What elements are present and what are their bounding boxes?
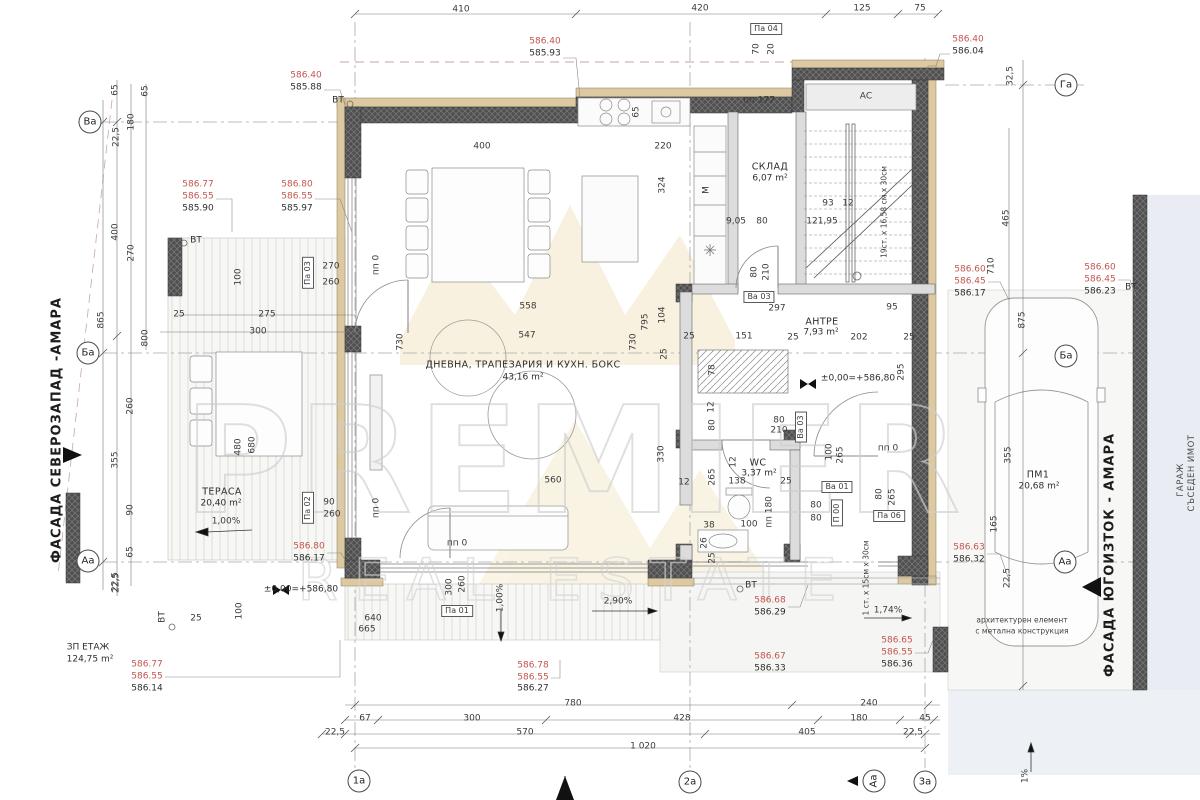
dimension-label: АС	[860, 93, 872, 102]
dimension-label: 80	[751, 266, 760, 277]
dimension-label: 121,95	[806, 218, 838, 227]
dimension-label: 210	[763, 263, 772, 280]
elevation-label: 586.29	[754, 609, 786, 618]
dimension-label: 875	[1019, 311, 1028, 328]
dimension-label: пп 0	[373, 498, 382, 518]
axis-label: Ва	[79, 111, 102, 134]
room-label: ПМ1	[1027, 470, 1050, 480]
note-label: архитектурен елемент	[976, 616, 1067, 624]
elevation-label-upper: 586.45	[954, 278, 986, 287]
panel-label: Па 03	[302, 257, 314, 289]
axis-label: Аа	[1054, 551, 1077, 574]
room-area-label: 20,68 m²	[1018, 483, 1059, 492]
room-area-label: 43,16 m²	[502, 374, 543, 383]
dimension-label: 78	[709, 364, 718, 375]
elevation-label-upper: 586.78	[517, 662, 549, 671]
elevation-label: 586.14	[131, 685, 163, 694]
dimension-label: 12	[842, 200, 853, 209]
dimension-label: 800	[142, 329, 151, 346]
dimension-label: 428	[673, 715, 690, 724]
dimension-label: М	[703, 186, 712, 194]
dimension-label: 730	[397, 333, 406, 350]
dimension-label: 300	[463, 715, 480, 724]
dimension-label: 151	[735, 333, 752, 342]
dimension-label: 420	[691, 5, 708, 14]
dimension-label: 100	[740, 521, 757, 530]
elevation-label: 586.36	[881, 661, 913, 670]
dimension-label: 330	[658, 445, 667, 462]
facade-label: ФАСАДА ЮГОИЗТОК - АМАРА	[1104, 433, 1117, 677]
axis-label: 3а	[914, 771, 937, 794]
elevation-label: ЗП ЕТАЖ	[67, 644, 109, 653]
dimension-label: 45	[919, 715, 930, 724]
axis-label: Аа	[863, 770, 886, 793]
dimension-label: 730	[630, 333, 639, 350]
dimension-label: 400	[473, 143, 490, 152]
dimension-label: 680	[249, 436, 258, 453]
elevation-label: 586.17	[954, 290, 986, 299]
dimension-label: 465	[1003, 209, 1012, 226]
elevation-label-upper: 586.55	[131, 673, 163, 682]
dimension-label: 25	[780, 478, 791, 487]
dimension-label: 19ст. х 16,58 см х 30см	[880, 166, 888, 258]
dimension-label: 560	[544, 477, 561, 486]
axis-label: Ба	[77, 342, 100, 365]
floor-plan-canvas: PREMIER REAL ESTATE 41042012575Па 047020…	[0, 0, 1200, 800]
dimension-label: 25	[903, 334, 914, 343]
dimension-label: 12	[708, 401, 717, 412]
dimension-label: 25	[709, 552, 718, 563]
dimension-label: пп 0	[878, 445, 898, 454]
elevation-label-upper: 586.55	[881, 649, 913, 658]
elevation-label: ±0,00=+586,80	[264, 586, 338, 595]
elevation-label-upper: 586.55	[281, 193, 313, 202]
elevation-label: ВТ	[745, 582, 757, 591]
dimension-label: 558	[519, 303, 536, 312]
dimension-label: 270	[128, 244, 137, 261]
panel-label: Ва 03	[795, 411, 807, 442]
dimension-label: 2,90%	[604, 598, 633, 607]
neighbor-label: СЪСЕДЕН ИМОТ	[1188, 435, 1197, 512]
dimension-label: 22,5	[1004, 568, 1013, 588]
dimension-label: 22,5	[325, 729, 345, 738]
annotation-layer: 41042012575Па 047020586.40585.93586.4058…	[0, 0, 1200, 800]
dimension-label: 65	[142, 85, 151, 96]
elevation-label-upper: 586.77	[182, 181, 214, 190]
dimension-label: 260	[323, 511, 340, 520]
dimension-label: пп 177	[743, 97, 775, 106]
dimension-label: 80	[810, 515, 821, 524]
dimension-label: 265	[889, 488, 898, 505]
axis-label: Ба	[1055, 345, 1078, 368]
elevation-label-upper: 586.80	[293, 543, 325, 552]
dimension-label: 1,00%	[212, 518, 241, 527]
dimension-label: 12	[678, 479, 689, 488]
dimension-label: 355	[1005, 446, 1014, 463]
dimension-label: 300	[446, 578, 455, 595]
dimension-label: 570	[516, 729, 533, 738]
elevation-label-upper: 586.68	[754, 597, 786, 606]
elevation-label-upper: 586.63	[953, 544, 985, 553]
dimension-label: 260	[322, 279, 339, 288]
dimension-label: 95	[886, 304, 897, 313]
facade-label: ФАСАДА СЕВЕРОЗАПАД -АМАРА	[51, 297, 64, 563]
dimension-label: 93	[822, 200, 833, 209]
dimension-label: ВТ	[159, 611, 168, 623]
room-area-label: 7,93 m²	[803, 329, 838, 338]
elevation-label: 585.88	[290, 84, 322, 93]
note-label: с метална конструкция	[975, 627, 1068, 635]
room-area-label: 6,07 m²	[752, 175, 787, 184]
dimension-label: 1,74%	[874, 607, 903, 616]
elevation-label: 124,75 m²	[67, 656, 114, 665]
dimension-label: 400	[112, 223, 121, 240]
dimension-label: 38	[703, 522, 714, 531]
elevation-label: 586.17	[293, 555, 325, 564]
room-label: АНТРЕ	[805, 317, 838, 327]
dimension-label: 300	[249, 328, 266, 337]
room-area-label: 20,40 m²	[200, 500, 241, 509]
dimension-label: 25	[787, 334, 798, 343]
dimension-label: 67	[359, 715, 370, 724]
dimension-label: 780	[564, 700, 581, 709]
dimension-label: 104	[659, 306, 668, 323]
dimension-label: 80	[773, 417, 784, 426]
dimension-label: 180	[128, 113, 137, 130]
dimension-label: 665	[358, 626, 375, 635]
room-label: СКЛАД	[752, 162, 788, 172]
room-label: ТЕРАСА	[202, 487, 242, 497]
dimension-label: 22,5	[903, 729, 923, 738]
dimension-label: 65	[127, 546, 136, 557]
axis-label: Га	[1055, 74, 1078, 97]
dimension-label: 202	[850, 334, 867, 343]
elevation-label-upper: 586.77	[131, 661, 163, 670]
panel-label: Ва 03	[743, 291, 774, 303]
elevation-label-upper: 586.60	[954, 266, 986, 275]
elevation-label: 585.97	[281, 205, 313, 214]
dimension-label: 80	[709, 419, 718, 430]
elevation-label: 586.33	[754, 665, 786, 674]
room-area-label: 3,37 m²	[741, 470, 776, 479]
elevation-label: ±0,00=+586,80	[821, 375, 895, 384]
elevation-label-upper: 586.65	[881, 637, 913, 646]
dimension-label: 100	[235, 268, 244, 285]
neighbor-label: ГАРАЖ	[1177, 463, 1186, 497]
axis-label: Аа	[77, 550, 100, 573]
room-label: WC	[750, 458, 767, 468]
panel-label: Па 06	[873, 510, 905, 522]
dimension-label: 65	[633, 106, 642, 117]
elevation-label-upper: 586.45	[1084, 276, 1116, 285]
dimension-label: пп 0	[447, 540, 467, 549]
dimension-label: 9,05	[726, 218, 746, 227]
dimension-label: 90	[127, 504, 136, 515]
dimension-label: 25	[661, 348, 670, 359]
dimension-label: 1,00%	[497, 584, 506, 613]
dimension-label: 260	[459, 575, 468, 592]
dimension-label: 25	[683, 333, 694, 342]
elevation-label-upper: 586.67	[754, 653, 786, 662]
panel-label: Па 02	[302, 492, 314, 524]
dimension-label: 220	[654, 143, 671, 152]
dimension-label: 165	[991, 515, 1000, 532]
room-label: ДНЕВНА, ТРАПЕЗАРИЯ И КУХН. БОКС	[425, 360, 620, 370]
elevation-label: 585.93	[529, 50, 561, 59]
dimension-label: 1%	[1022, 769, 1031, 783]
axis-label: 2а	[679, 771, 702, 794]
dimension-label: 26	[701, 537, 710, 548]
panel-label: Па 01	[441, 605, 473, 617]
dimension-label: 547	[518, 332, 535, 341]
dimension-label: 480	[235, 438, 244, 455]
dimension-label: 210	[770, 427, 787, 436]
elevation-label: 586.27	[517, 685, 549, 694]
dimension-label: 75	[914, 5, 925, 14]
elevation-label: 585.90	[182, 205, 214, 214]
dimension-label: 22,5	[113, 127, 122, 147]
dimension-label: 710	[988, 257, 997, 274]
dimension-label: 138	[728, 478, 745, 487]
elevation-label: 586.23	[1084, 288, 1116, 297]
elevation-label-upper: 586.80	[281, 181, 313, 190]
dimension-label: 324	[659, 176, 668, 193]
dimension-label: 865	[98, 311, 107, 328]
dimension-label: 1 020	[630, 743, 656, 752]
dimension-label: 65	[112, 84, 121, 95]
dimension-label: 410	[452, 6, 469, 15]
dimension-label: 100	[236, 602, 245, 619]
dimension-label: 12	[730, 456, 739, 467]
dimension-label: 260	[127, 397, 136, 414]
dimension-label: 90	[323, 499, 334, 508]
dimension-label: 355	[112, 451, 121, 468]
dimension-label: 20	[768, 43, 777, 54]
dimension-label: 100	[826, 443, 835, 460]
elevation-label-upper: 586.55	[182, 193, 214, 202]
dimension-label: 297	[768, 305, 785, 314]
dimension-label: 640	[364, 615, 381, 624]
elevation-label: ВТ	[190, 237, 202, 246]
elevation-label: 586.32	[953, 556, 985, 565]
elevation-label: ВТ	[332, 97, 344, 106]
panel-label: Ва 01	[821, 481, 852, 493]
dimension-label: 275	[258, 311, 275, 320]
dimension-label: 80	[876, 488, 885, 499]
dimension-label: 22,5	[113, 573, 122, 593]
panel-label: Па 04	[750, 23, 782, 35]
dimension-label: 1 ст. х 15см х 30см	[862, 540, 870, 615]
dimension-label: 25	[190, 615, 201, 624]
dimension-label: 25	[173, 311, 184, 320]
dimension-label: 70	[753, 43, 762, 54]
elevation-label-upper: 586.40	[290, 72, 322, 81]
dimension-label: 265	[837, 446, 846, 463]
elevation-label-upper: 586.55	[517, 674, 549, 683]
dimension-label: пп 0	[373, 255, 382, 275]
dimension-label: 80	[810, 502, 821, 511]
dimension-label: 795	[642, 313, 651, 330]
dimension-label: 265	[709, 468, 718, 485]
elevation-label-upper: 586.40	[529, 38, 561, 47]
elevation-label-upper: 586.60	[1084, 264, 1116, 273]
dimension-label: 80	[756, 218, 767, 227]
dimension-label: 405	[798, 729, 815, 738]
dimension-label: 32,5	[1007, 66, 1016, 86]
elevation-label: 586.04	[952, 48, 984, 57]
dimension-label: 125	[853, 5, 870, 14]
elevation-label-upper: 586.40	[952, 36, 984, 45]
panel-label: П 00	[831, 500, 843, 527]
axis-label: 1а	[348, 770, 371, 793]
elevation-label: ВТ	[1125, 284, 1137, 293]
dimension-label: 240	[860, 700, 877, 709]
dimension-label: пп 180	[766, 496, 775, 528]
dimension-label: 180	[850, 715, 867, 724]
dimension-label: 295	[898, 363, 907, 380]
dimension-label: 270	[322, 263, 339, 272]
